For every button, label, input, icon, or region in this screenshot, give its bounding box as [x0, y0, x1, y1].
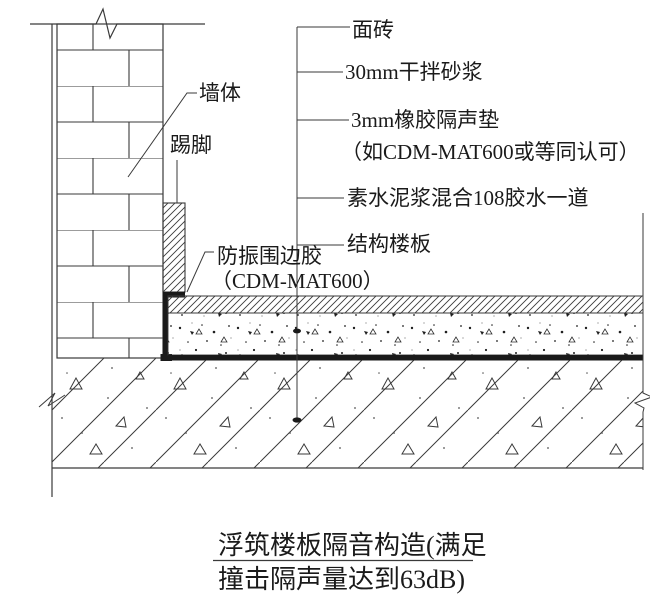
wall-body — [57, 24, 163, 358]
structural-slab — [52, 358, 643, 468]
label-rubber-sound-pad: 3mm橡胶隔声垫 — [351, 108, 499, 132]
label-rubber-sound-pad-note: （如CDM-MAT600或等同认可） — [341, 140, 640, 164]
tile-and-mortar-finish-layer — [168, 296, 643, 313]
leader-dot-slab — [293, 417, 302, 422]
label-cement-slurry: 素水泥浆混合108胶水一道 — [347, 186, 589, 210]
dry-mix-mortar-layer — [168, 313, 643, 355]
rubber-isolation-pad-layer — [168, 355, 643, 361]
label-dry-mix-mortar: 30mm干拌砂浆 — [345, 60, 483, 84]
skirting — [163, 203, 185, 292]
title-line2: 撞击隔声量达到63dB) — [218, 565, 465, 594]
label-perimeter-glue-line1: 防振围边胶 — [217, 244, 322, 268]
leader-perimeter-glue — [187, 252, 214, 292]
label-perimeter-glue-line2: （CDM-MAT600） — [211, 269, 384, 293]
title-line1: 浮筑楼板隔音构造(满足 — [218, 531, 487, 560]
floor-layers — [168, 296, 643, 361]
construction-detail-drawing: 面砖 30mm干拌砂浆 3mm橡胶隔声垫 （如CDM-MAT600或等同认可） … — [0, 0, 650, 616]
glue-strip-vertical — [163, 292, 168, 360]
construction-detail-page: 面砖 30mm干拌砂浆 3mm橡胶隔声垫 （如CDM-MAT600或等同认可） … — [0, 0, 650, 616]
label-skirting: 踢脚 — [170, 133, 212, 157]
skirting-board — [163, 203, 185, 292]
label-structural-slab: 结构楼板 — [347, 232, 431, 256]
annotation-labels: 面砖 30mm干拌砂浆 3mm橡胶隔声垫 （如CDM-MAT600或等同认可） … — [170, 18, 640, 293]
leader-dot-mortar-layer — [293, 329, 301, 334]
slab-hatch-area — [52, 358, 643, 468]
drawing-title: 浮筑楼板隔音构造(满足 撞击隔声量达到63dB) — [213, 531, 487, 594]
label-face-tile: 面砖 — [352, 18, 394, 42]
label-wall: 墙体 — [199, 81, 241, 105]
